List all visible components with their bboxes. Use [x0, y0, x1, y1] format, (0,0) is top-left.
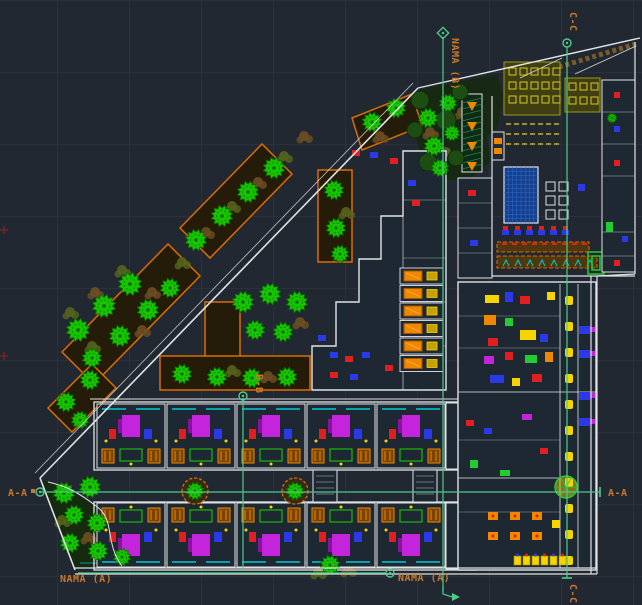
- section-label-cc-top[interactable]: C-C: [567, 12, 578, 32]
- section-label-nama-b[interactable]: NAMA (B): [449, 38, 460, 90]
- section-label-nama-a-right[interactable]: NAMA (A): [398, 573, 450, 584]
- section-label-aa-left[interactable]: A-A: [8, 488, 28, 499]
- driveway-ramp[interactable]: [462, 94, 482, 172]
- cad-canvas[interactable]: C-C C-C NAMA (B) B-B A-A A-A NAMA (A) NA…: [0, 0, 642, 605]
- frame-ticks: [0, 226, 8, 360]
- section-label-aa-right[interactable]: A-A: [608, 488, 628, 499]
- right-service-rooms[interactable]: [602, 80, 635, 272]
- section-label-nama-a-left[interactable]: NAMA (A): [60, 574, 112, 585]
- section-label-cc-bottom[interactable]: C-C: [567, 584, 578, 604]
- right-wing-building[interactable]: [458, 282, 596, 570]
- section-label-bb[interactable]: B-B: [253, 374, 264, 394]
- buildings-layer: [80, 62, 635, 570]
- cad-viewport[interactable]: C-C C-C NAMA (B) B-B A-A A-A NAMA (A) NA…: [0, 0, 642, 605]
- roof-blocks[interactable]: [492, 62, 600, 160]
